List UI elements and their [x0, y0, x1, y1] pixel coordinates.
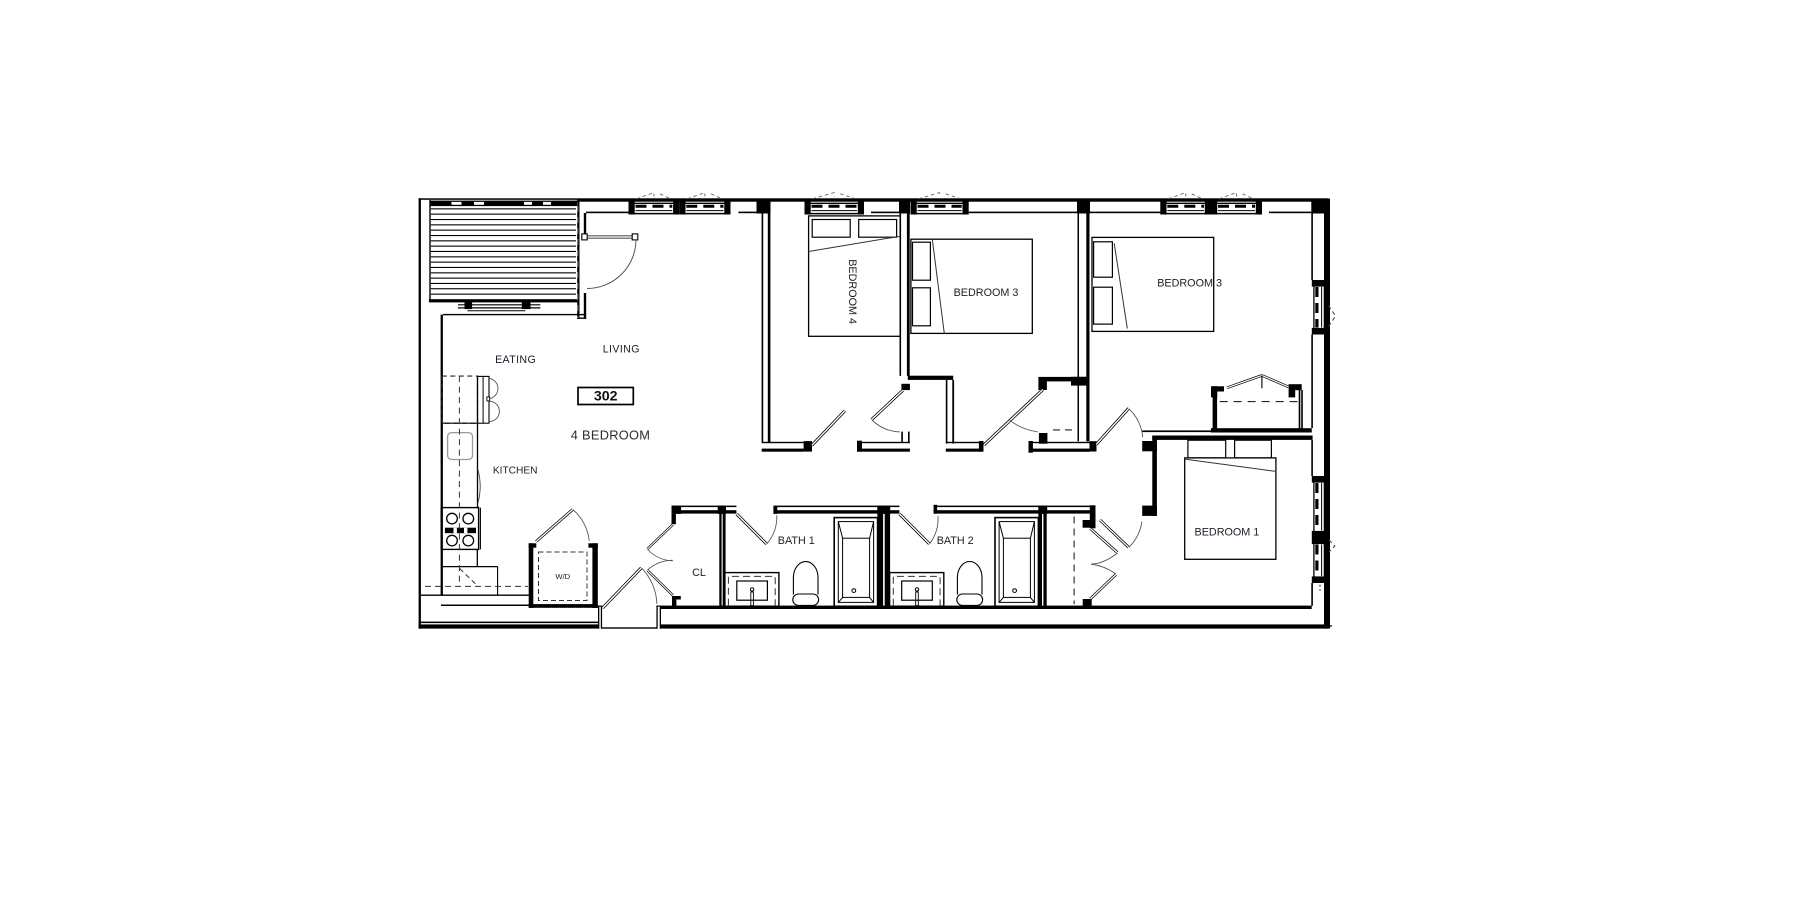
- svg-text:BEDROOM 1: BEDROOM 1: [1195, 526, 1260, 538]
- svg-text:BATH 1: BATH 1: [778, 535, 815, 547]
- svg-text:302: 302: [594, 389, 618, 405]
- svg-text:BEDROOM 3: BEDROOM 3: [1157, 277, 1222, 289]
- svg-text:W/D: W/D: [555, 572, 570, 581]
- svg-text:EATING: EATING: [495, 354, 536, 366]
- svg-text:BEDROOM 4: BEDROOM 4: [846, 259, 858, 324]
- svg-text:BATH 2: BATH 2: [937, 535, 974, 547]
- svg-text:CL: CL: [692, 567, 706, 579]
- svg-text:4 BEDROOM: 4 BEDROOM: [571, 427, 651, 442]
- svg-text:LIVING: LIVING: [603, 343, 640, 355]
- svg-text:KITCHEN: KITCHEN: [493, 465, 538, 476]
- svg-text:BEDROOM 3: BEDROOM 3: [954, 287, 1019, 299]
